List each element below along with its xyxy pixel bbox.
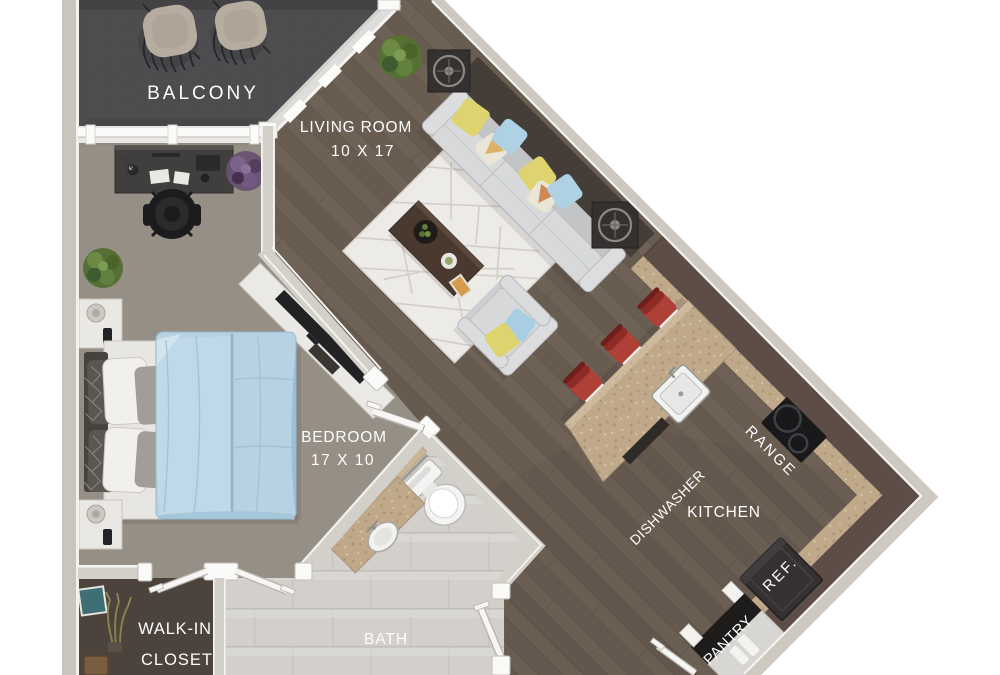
svg-text:BATH: BATH <box>364 631 408 648</box>
svg-text:LIVING ROOM: LIVING ROOM <box>300 119 412 136</box>
svg-text:BEDROOM: BEDROOM <box>301 429 387 446</box>
svg-text:KITCHEN: KITCHEN <box>687 504 761 521</box>
svg-text:10 X 17: 10 X 17 <box>331 143 395 160</box>
svg-text:17 X 10: 17 X 10 <box>311 452 375 469</box>
svg-text:CLOSET: CLOSET <box>141 651 213 669</box>
svg-text:WALK-IN: WALK-IN <box>138 620 212 638</box>
svg-text:BALCONY: BALCONY <box>147 83 259 104</box>
